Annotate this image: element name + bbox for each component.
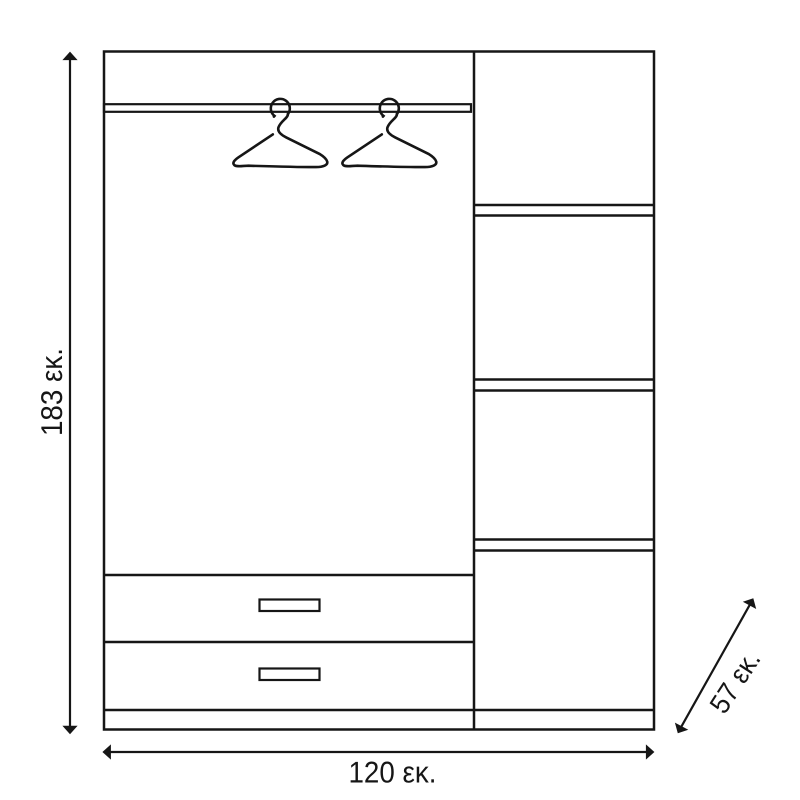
svg-text:183 εκ.: 183 εκ. — [36, 348, 69, 436]
svg-text:120 εκ.: 120 εκ. — [349, 757, 437, 790]
